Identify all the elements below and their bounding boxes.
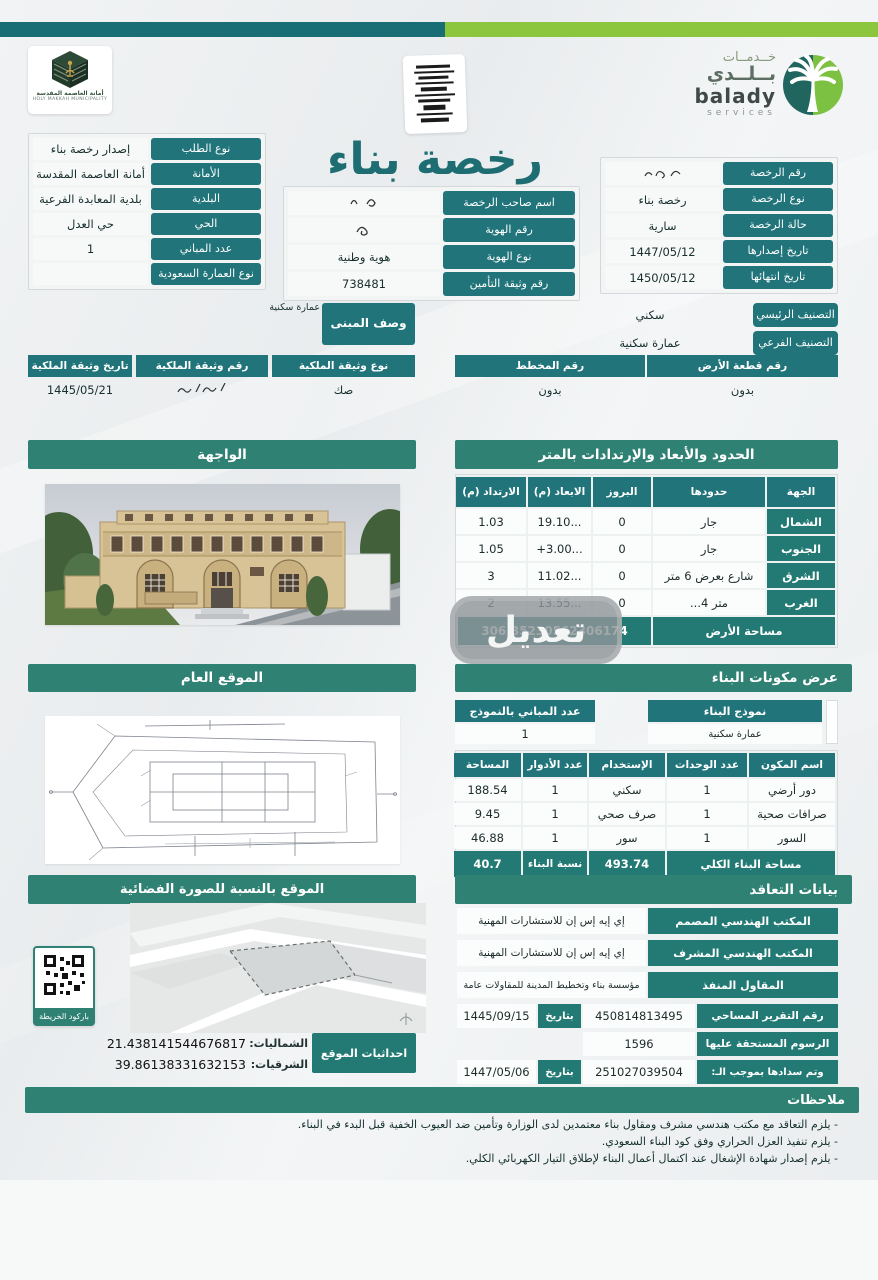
barcode-icon [410, 60, 460, 128]
east-coordinate-label: الشرقيات: [248, 1056, 308, 1073]
redacted-scribble [641, 167, 685, 181]
table-row: الجنوب جار 0 +3.00... 1.05 [458, 536, 835, 561]
plan-number-header: رقم المخطط [455, 355, 645, 377]
component-units: 1 [667, 803, 747, 825]
payment-label: وتم سدادها بموجب الـ: [697, 1060, 838, 1084]
component-floors: 1 [523, 827, 587, 849]
map-qr-card: باركود الخريطة [33, 946, 95, 1026]
payment-row: وتم سدادها بموجب الـ: 251027039504 بتاري… [457, 1060, 838, 1084]
col-limits: حدودها [653, 477, 765, 507]
survey-report-label: رقم التقرير المساحي [697, 1004, 838, 1028]
col-component-name: اسم المكون [749, 753, 835, 777]
table-row: دور أرضي 1 سكني 1 188.54 [458, 779, 835, 801]
amana-value: أمانة العاصمة المقدسة [33, 163, 148, 185]
payment-date-label: بتاريخ [538, 1060, 581, 1084]
north-coordinate-label: الشماليات: [248, 1035, 308, 1052]
plot-number-value: بدون [647, 380, 838, 400]
owner-name-value [288, 191, 440, 215]
municipality-emblem-icon [48, 50, 92, 90]
deed-number-header: رقم وثيقة الملكية [136, 355, 268, 377]
insurance-doc-label: رقم وثيقة التأمين [443, 272, 575, 296]
build-ratio-label: نسبة البناء [523, 851, 587, 877]
owner-info-table: اسم صاحب الرخصة رقم الهوية نوع الهويةهوي… [283, 186, 580, 301]
note-item: - يلزم إصدار شهادة الإشغال عند اكتمال أع… [60, 1150, 838, 1167]
component-units: 1 [667, 827, 747, 849]
table-row: الأمانةأمانة العاصمة المقدسة [33, 163, 261, 185]
component-units: 1 [667, 779, 747, 801]
table-row: الشمال جار 0 19.10... 1.03 [458, 509, 835, 534]
balady-en-line2: services [664, 108, 776, 118]
side-east: الشرق [767, 563, 835, 588]
component-floors: 1 [523, 779, 587, 801]
designer-office-label: المكتب الهندسي المصمم [648, 908, 838, 934]
component-usage: سكني [589, 779, 665, 801]
table-row: حالة الرخصةسارية [605, 214, 833, 237]
district-value: حي العدل [33, 213, 148, 235]
contractor-value: مؤسسة بناء وتخطيط المدينة للمقاولات عامة [457, 972, 646, 998]
component-usage: صرف صحي [589, 803, 665, 825]
components-section-title: عرض مكونات البناء [455, 664, 852, 692]
model-count-header: عدد المباني بالنموذج [455, 700, 595, 722]
id-number-label: رقم الهوية [443, 218, 575, 242]
deed-date-value: 1445/05/21 [28, 380, 132, 400]
west-limit: ...4 متر [653, 590, 765, 615]
model-value: عمارة سكنية [648, 724, 822, 744]
build-ratio-value: 40.7 [454, 851, 521, 877]
total-area-value: 493.74 [589, 851, 665, 877]
deed-type-header: نوع وثيقة الملكية [272, 355, 415, 377]
top-bar-teal [0, 22, 445, 37]
municipality-logo: أمانة العاصمة المقدسة HOLY MAKKAH MUNICI… [28, 46, 112, 114]
table-row: رقم وثيقة التأمين738481 [288, 272, 575, 296]
table-row: نوع الرخصةرخصة بناء [605, 188, 833, 211]
building-permit-page: أمانة العاصمة المقدسة HOLY MAKKAH MUNICI… [0, 0, 878, 1280]
east-dimension: 11.02... [528, 563, 591, 588]
buildings-count-label: عدد المباني [151, 238, 261, 260]
balady-palm-icon [782, 54, 844, 116]
east-protrusion: 0 [593, 563, 651, 588]
col-usage: الإستخدام [589, 753, 665, 777]
survey-report-row: رقم التقرير المساحي 450814813495 بتاريخ … [457, 1004, 838, 1028]
license-status-label: حالة الرخصة [723, 214, 833, 237]
permit-barcode [403, 54, 468, 134]
sub-classification-value: عمارة سكنية [560, 331, 740, 355]
facade-section-title: الواجهة [28, 440, 416, 469]
redacted-scribble [174, 383, 230, 397]
payment-date-value: 1447/05/06 [457, 1060, 536, 1084]
component-area: 46.88 [454, 827, 521, 849]
col-floors: عدد الأدوار [523, 753, 587, 777]
fees-row: الرسوم المستحقة عليها 1596 [457, 1032, 838, 1056]
payment-value: 251027039504 [583, 1060, 695, 1084]
request-info-table: نوع الطلبإصدار رخصة بناء الأمانةأمانة ال… [28, 133, 266, 290]
license-type-label: نوع الرخصة [723, 188, 833, 211]
district-label: الحي [151, 213, 261, 235]
model-count-value: 1 [455, 724, 595, 744]
license-number-value [605, 162, 720, 185]
supervisor-office-label: المكتب الهندسي المشرف [648, 940, 838, 966]
boundaries-header-row: الجهة حدودها البروز الابعاد (م) الارتداد… [458, 477, 835, 507]
table-row: نوع العمارة السعودية [33, 263, 261, 285]
sub-classification-label: التصنيف الفرعي [753, 331, 838, 355]
owner-name-label: اسم صاحب الرخصة [443, 191, 575, 215]
component-usage: سور [589, 827, 665, 849]
model-side-box [826, 700, 838, 744]
table-row: البلديةبلدية المعابدة الفرعية [33, 188, 261, 210]
deed-number-value [136, 380, 268, 400]
balady-en-line1: balady [664, 85, 776, 108]
id-type-label: نوع الهوية [443, 245, 575, 269]
north-protrusion: 0 [593, 509, 651, 534]
table-row: اسم صاحب الرخصة [288, 191, 575, 215]
south-protrusion: 0 [593, 536, 651, 561]
fees-label: الرسوم المستحقة عليها [697, 1032, 838, 1056]
fees-value: 1596 [583, 1032, 695, 1056]
east-setback: 3 [456, 563, 526, 588]
license-number-label: رقم الرخصة [723, 162, 833, 185]
satellite-map-image [130, 903, 426, 1033]
col-protrusion: البروز [593, 477, 651, 507]
survey-report-value: 450814813495 [583, 1004, 695, 1028]
south-limit: جار [653, 536, 765, 561]
top-bar-green [445, 22, 878, 37]
notes-list: - يلزم التعاقد مع مكتب هندسي مشرف ومقاول… [60, 1116, 838, 1167]
issue-date-value: 1447/05/12 [605, 240, 720, 263]
amana-label: الأمانة [151, 163, 261, 185]
id-number-value [288, 218, 440, 242]
redacted-scribble [351, 223, 377, 237]
site-plan-image [45, 716, 400, 864]
saudi-style-value [33, 263, 148, 285]
north-setback: 1.03 [456, 509, 526, 534]
insurance-doc-value: 738481 [288, 272, 440, 296]
facade-image [45, 484, 400, 625]
balady-logo: خــدمــات بــلــدي balady services [664, 44, 850, 134]
request-type-value: إصدار رخصة بناء [33, 138, 148, 160]
expiry-date-value: 1450/05/12 [605, 266, 720, 289]
main-classification-label: التصنيف الرئيسي [753, 303, 838, 327]
north-dimension: 19.10... [528, 509, 591, 534]
site-section-title: الموقع العام [28, 664, 416, 692]
boundaries-section-title: الحدود والأبعاد والإرتدادات بالمتر [455, 440, 838, 469]
component-area: 9.45 [454, 803, 521, 825]
buildings-count-value: 1 [33, 238, 148, 260]
municipality-name-en: HOLY MAKKAH MUNICIPALITY [33, 97, 107, 102]
side-west: الغرب [767, 590, 835, 615]
page-title: رخصة بناء [290, 134, 580, 185]
table-row: الشرق شارع بعرض 6 متر 0 11.02... 3 [458, 563, 835, 588]
side-north: الشمال [767, 509, 835, 534]
request-type-label: نوع الطلب [151, 138, 261, 160]
deed-date-header: تاريخ وثيقة الملكية [28, 355, 132, 377]
contract-section-title: بيانات التعاقد [455, 875, 852, 904]
component-area: 188.54 [454, 779, 521, 801]
note-item: - يلزم تنفيذ العزل الحراري وفق كود البنا… [60, 1133, 838, 1150]
model-header: نموذج البناء [648, 700, 822, 722]
coordinates-box-label: احداثيات الموقع [312, 1033, 416, 1073]
satellite-section-title: الموقع بالنسبة للصورة الفضائية [28, 875, 416, 904]
north-limit: جار [653, 509, 765, 534]
qr-code-icon [42, 953, 86, 997]
component-name: دور أرضي [749, 779, 835, 801]
municipality-name-ar: أمانة العاصمة المقدسة [36, 90, 103, 97]
survey-date-label: بتاريخ [538, 1004, 581, 1028]
col-setback: الارتداد (م) [456, 477, 526, 507]
table-row: تاريخ انتهائها1450/05/12 [605, 266, 833, 289]
id-type-value: هوية وطنية [288, 245, 440, 269]
north-coordinate-value: 21.438141544676817 [126, 1035, 246, 1052]
table-row: الحيحي العدل [33, 213, 261, 235]
plan-number-value: بدون [455, 380, 645, 400]
supervisor-office-row: المكتب الهندسي المشرف إي إيه إس إن للاست… [457, 940, 838, 966]
east-limit: شارع بعرض 6 متر [653, 563, 765, 588]
building-desc-label: وصف المبنى [322, 303, 415, 345]
component-floors: 1 [523, 803, 587, 825]
deed-type-value: صك [272, 380, 415, 400]
notes-section-title: ملاحظات [25, 1087, 859, 1113]
table-row: نوع الهويةهوية وطنية [288, 245, 575, 269]
col-dimensions: الابعاد (م) [528, 477, 591, 507]
license-info-table: رقم الرخصة نوع الرخصةرخصة بناء حالة الرخ… [600, 157, 838, 294]
table-row: رقم الرخصة [605, 162, 833, 185]
qr-card-label: باركود الخريطة [35, 1008, 93, 1024]
col-units: عدد الوحدات [667, 753, 747, 777]
expiry-date-label: تاريخ انتهائها [723, 266, 833, 289]
table-row: رقم الهوية [288, 218, 575, 242]
watermark-badge: تعديل [450, 596, 622, 664]
south-setback: 1.05 [456, 536, 526, 561]
satellite-map-drawing [130, 903, 426, 1033]
land-area-label: مساحة الأرض [653, 617, 835, 645]
plot-number-header: رقم قطعة الأرض [647, 355, 838, 377]
note-item: - يلزم التعاقد مع مكتب هندسي مشرف ومقاول… [60, 1116, 838, 1133]
components-header-row: اسم المكون عدد الوحدات الإستخدام عدد الأ… [458, 753, 835, 777]
license-status-value: سارية [605, 214, 720, 237]
license-type-value: رخصة بناء [605, 188, 720, 211]
municipality-value: بلدية المعابدة الفرعية [33, 188, 148, 210]
designer-office-value: إي إيه إس إن للاستشارات المهنية [457, 908, 646, 934]
col-side: الجهة [767, 477, 835, 507]
balady-ar-line2: بــلــدي [664, 65, 776, 85]
total-area-label: مساحة البناء الكلي [667, 851, 835, 877]
designer-office-row: المكتب الهندسي المصمم إي إيه إس إن للاست… [457, 908, 838, 934]
table-row: نوع الطلبإصدار رخصة بناء [33, 138, 261, 160]
component-name: صرافات صحية [749, 803, 835, 825]
survey-date-value: 1445/09/15 [457, 1004, 536, 1028]
contractor-row: المقاول المنفذ مؤسسة بناء وتخطيط المدينة… [457, 972, 838, 998]
redacted-scribble [343, 196, 385, 210]
saudi-style-label: نوع العمارة السعودية [151, 263, 261, 285]
site-plan-drawing [45, 716, 400, 864]
east-coordinate-value: 39.86138331632153 [126, 1056, 246, 1073]
component-name: السور [749, 827, 835, 849]
building-desc-value: عمارة سكنية [252, 302, 320, 313]
contractor-label: المقاول المنفذ [648, 972, 838, 998]
facade-rendering [45, 484, 400, 625]
side-south: الجنوب [767, 536, 835, 561]
main-classification-value: سكني [560, 303, 740, 327]
table-row: تاريخ إصدارها1447/05/12 [605, 240, 833, 263]
page-bottom-blank [0, 1180, 878, 1280]
components-total-row: مساحة البناء الكلي 493.74 نسبة البناء 40… [458, 851, 835, 877]
supervisor-office-value: إي إيه إس إن للاستشارات المهنية [457, 940, 646, 966]
issue-date-label: تاريخ إصدارها [723, 240, 833, 263]
south-dimension: +3.00... [528, 536, 591, 561]
table-row: السور 1 سور 1 46.88 [458, 827, 835, 849]
components-table: اسم المكون عدد الوحدات الإستخدام عدد الأ… [455, 750, 838, 880]
table-row: صرافات صحية 1 صرف صحي 1 9.45 [458, 803, 835, 825]
col-area: المساحة [454, 753, 521, 777]
table-row: عدد المباني1 [33, 238, 261, 260]
municipality-label: البلدية [151, 188, 261, 210]
